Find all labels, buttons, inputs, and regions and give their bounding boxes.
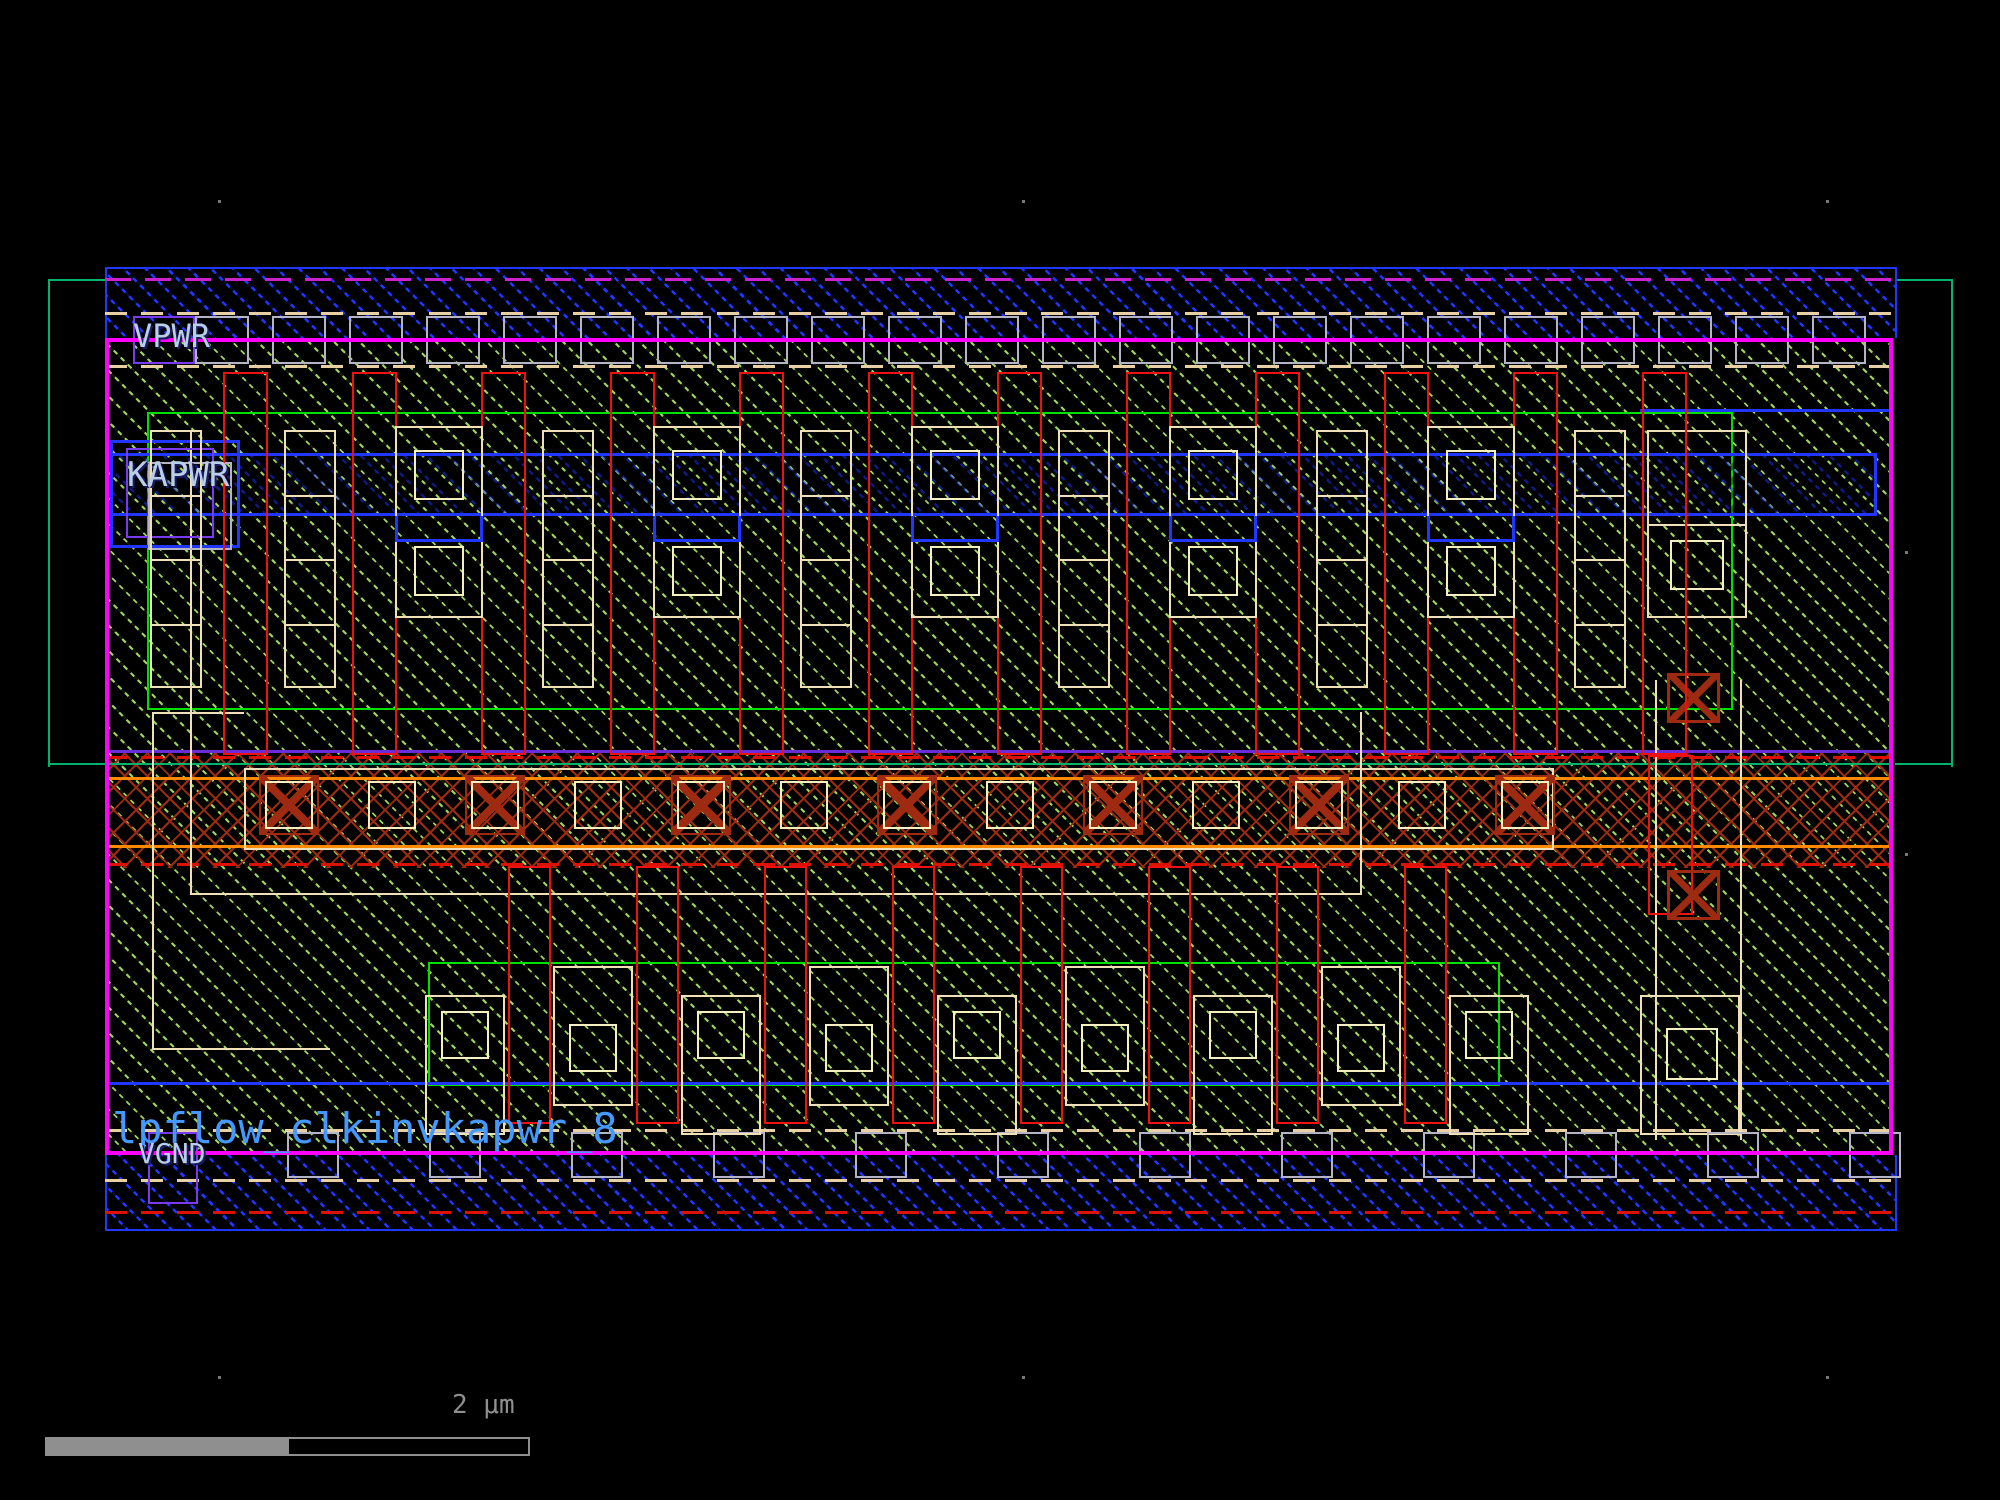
- label-vpwr: VPWR: [133, 320, 210, 352]
- label-vgnd: VGND: [138, 1140, 205, 1168]
- scale-bar-outline: [287, 1437, 530, 1456]
- viewport-tick: [1826, 200, 1829, 203]
- scale-bar-label: 2 μm: [452, 1392, 515, 1418]
- viewport-tick: [1905, 853, 1908, 856]
- viewport-tick: [1022, 200, 1025, 203]
- viewport-tick: [218, 200, 221, 203]
- label-kapwr: KAPWR: [127, 458, 229, 492]
- viewport-tick: [1022, 1376, 1025, 1379]
- viewport-tick: [218, 1376, 221, 1379]
- viewport-tick: [1826, 1376, 1829, 1379]
- layout-viewport[interactable]: VPWR KAPWR lpflow_clkinvkapwr_8 VGND 2 μ…: [0, 0, 2000, 1500]
- viewport-tick: [1905, 551, 1908, 554]
- scale-bar-filled: [45, 1437, 287, 1456]
- cell-boundary: [105, 338, 1893, 1155]
